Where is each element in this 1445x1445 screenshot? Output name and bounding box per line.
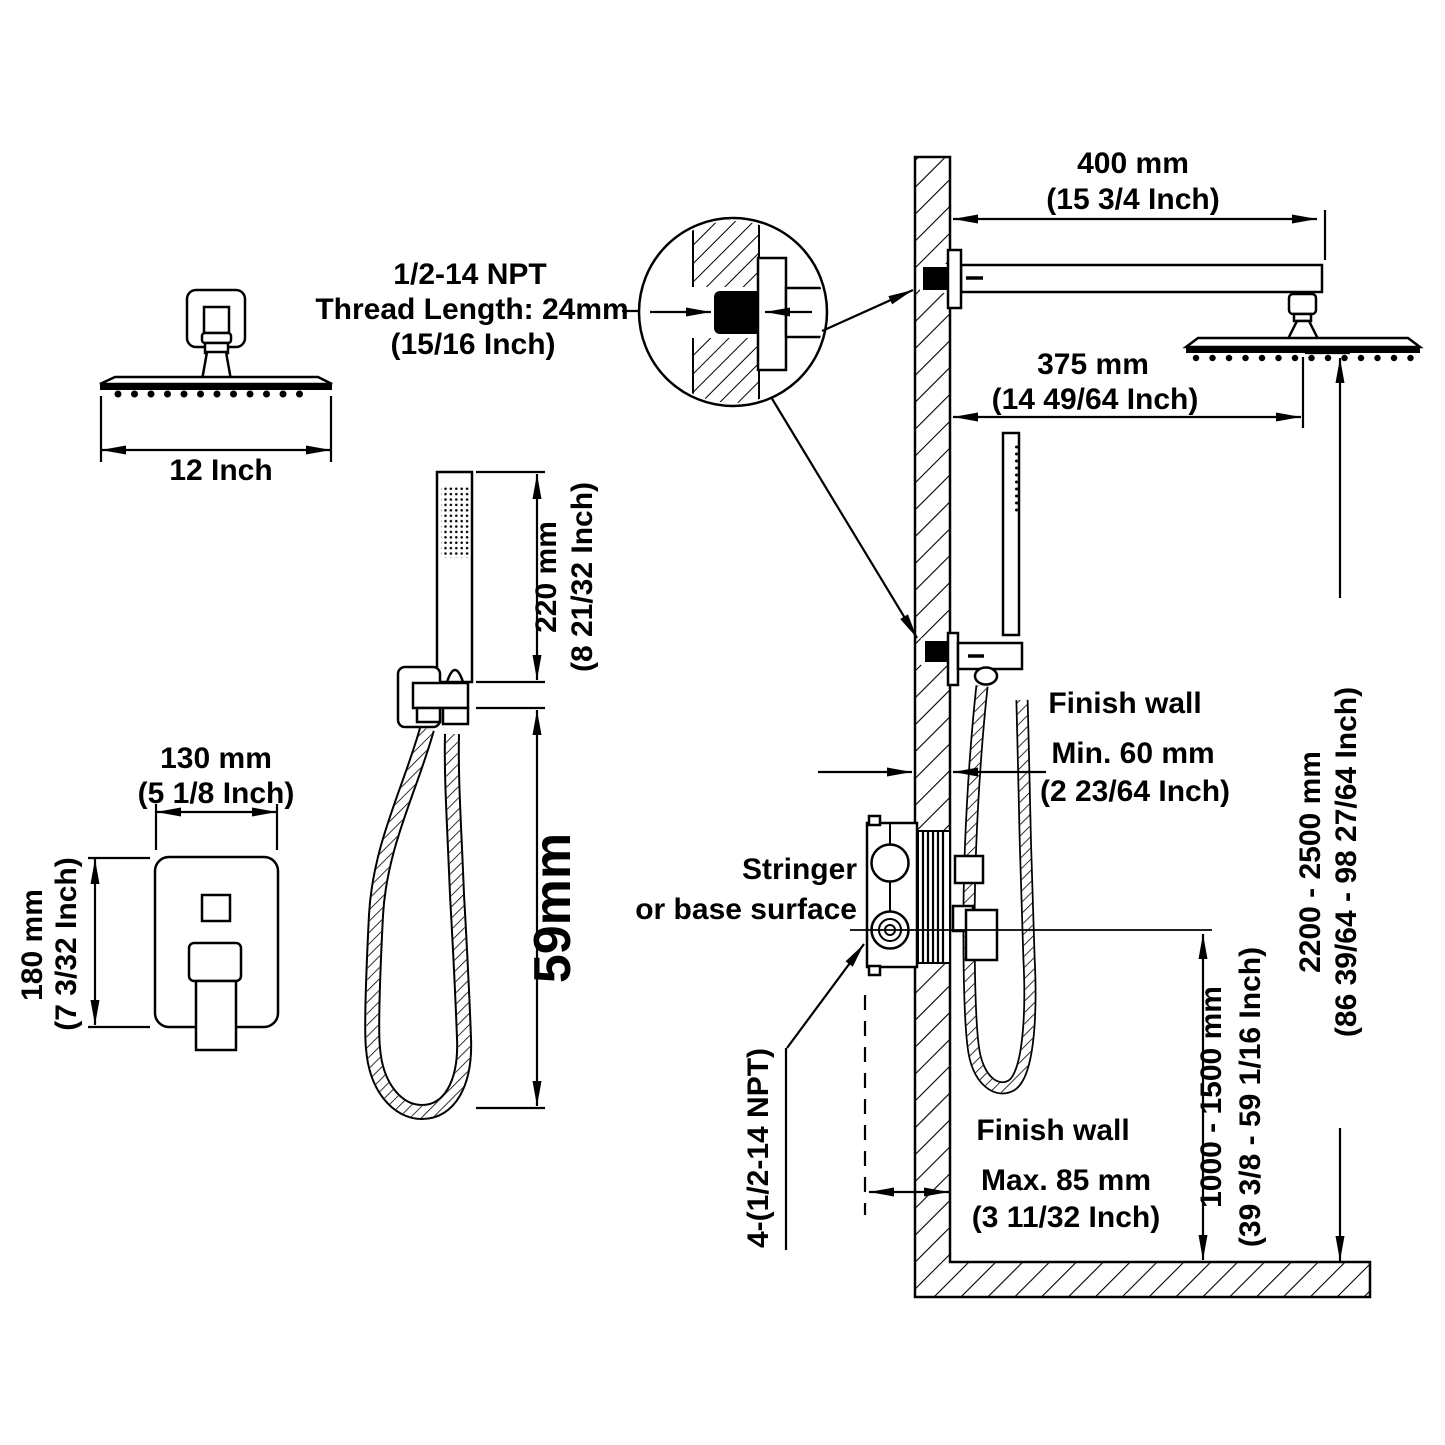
arm-length-inch-label: (15 3/4 Inch) xyxy=(1046,183,1219,216)
stringer-label-line1: Stringer xyxy=(742,853,857,886)
ports-label: 4-(1/2-14 NPT) xyxy=(742,1048,775,1248)
rough-in-valve-side-view xyxy=(867,816,997,975)
overhead-shower-front-view xyxy=(100,290,332,394)
head-height-mm-label: 2200 - 2500 mm xyxy=(1294,751,1327,973)
head-offset-mm-label: 375 mm xyxy=(1037,348,1149,381)
valve-height-mm-label: 1000 - 1500 mm xyxy=(1195,986,1228,1208)
leader-to-holder-thread xyxy=(771,397,917,638)
overhead-size-label: 12 Inch xyxy=(169,454,272,487)
shower-arm-side-view xyxy=(920,250,1322,339)
head-offset-dimension: 375 mm (14 49/64 Inch) xyxy=(953,348,1303,428)
head-height-dimension: 2200 - 2500 mm (86 39/64 - 98 27/64 Inch… xyxy=(1294,353,1363,1261)
wall-thickness-max-dimension: Finish wall Max. 85 mm (3 11/32 Inch) xyxy=(869,1114,1160,1234)
shower-system-dimension-diagram: 12 Inch 1/2-14 NPT Thread Length: 24mm (… xyxy=(0,0,1445,1445)
finish-wall-lower-label: Finish wall xyxy=(976,1114,1129,1147)
head-height-inch-label: (86 39/64 - 98 27/64 Inch) xyxy=(1330,687,1363,1037)
wall-max-inch-label: (3 11/32 Inch) xyxy=(972,1201,1160,1234)
arm-length-dimension: 400 mm (15 3/4 Inch) xyxy=(953,147,1325,260)
diagram-svg: 12 Inch 1/2-14 NPT Thread Length: 24mm (… xyxy=(0,0,1445,1445)
wall-min-inch-label: (2 23/64 Inch) xyxy=(1040,775,1230,808)
handheld-spray-face xyxy=(441,486,469,558)
rain-head-side-view xyxy=(1186,338,1420,358)
plate-height-inch-label: (7 3/32 Inch) xyxy=(50,857,83,1030)
handheld-length-dimension: 220 mm (8 21/32 Inch) xyxy=(476,472,599,682)
thread-spec-label: 1/2-14 NPT xyxy=(393,258,546,291)
wall-max-mm-label: Max. 85 mm xyxy=(981,1164,1151,1197)
plate-height-mm-label: 180 mm xyxy=(16,889,49,1001)
holder-offset-dimension: 59mm xyxy=(476,708,582,1108)
thread-length-inch-label: (15/16 Inch) xyxy=(390,328,555,361)
thread-callout: 1/2-14 NPT Thread Length: 24mm (15/16 In… xyxy=(315,258,656,361)
finish-wall-upper-label: Finish wall xyxy=(1048,687,1201,720)
arm-length-mm-label: 400 mm xyxy=(1077,147,1189,180)
plate-width-mm-label: 130 mm xyxy=(160,742,272,775)
wall-min-mm-label: Min. 60 mm xyxy=(1051,737,1214,770)
head-offset-inch-label: (14 49/64 Inch) xyxy=(992,383,1199,416)
stringer-label-line2: or base surface xyxy=(635,893,857,926)
valve-trim-plate-front-view xyxy=(155,857,278,1050)
handheld-shower-front-view xyxy=(372,472,472,1112)
overhead-size-dimension: 12 Inch xyxy=(101,396,331,487)
plate-width-inch-label: (5 1/8 Inch) xyxy=(138,777,295,810)
trim-plate-width-dimension: 130 mm (5 1/8 Inch) xyxy=(138,742,295,850)
valve-height-inch-label: (39 3/8 - 59 1/16 Inch) xyxy=(1234,947,1267,1247)
holder-offset-label: 59mm xyxy=(524,833,582,983)
ports-annotation: 4-(1/2-14 NPT) xyxy=(742,944,864,1250)
handheld-length-inch-label: (8 21/32 Inch) xyxy=(566,482,599,672)
handheld-length-mm-label: 220 mm xyxy=(530,521,563,633)
trim-plate-height-dimension: 180 mm (7 3/32 Inch) xyxy=(16,857,150,1030)
thread-detail-circle xyxy=(639,218,917,638)
leader-to-arm-thread xyxy=(822,290,913,331)
thread-length-label: Thread Length: 24mm xyxy=(315,293,628,326)
